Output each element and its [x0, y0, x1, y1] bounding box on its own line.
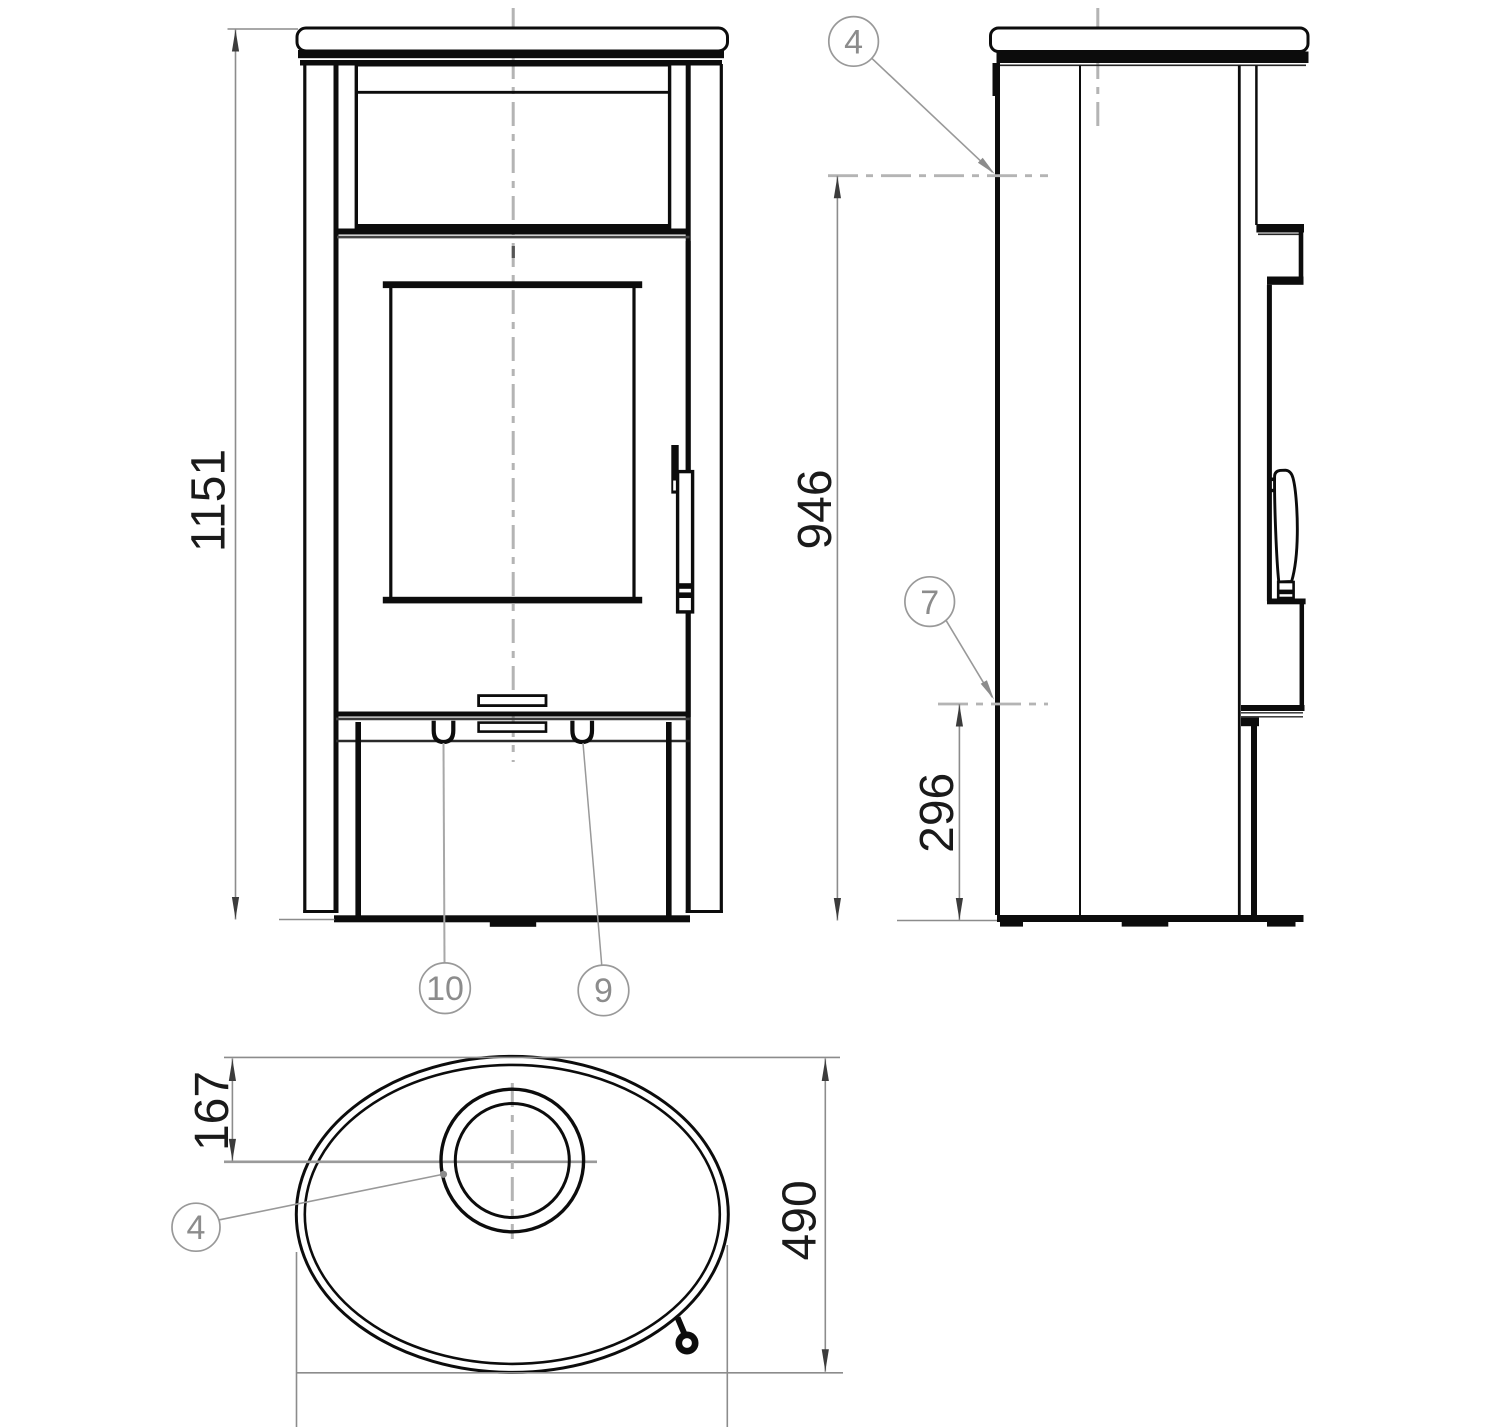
svg-text:4: 4	[844, 24, 863, 62]
svg-text:167: 167	[186, 1071, 239, 1151]
svg-text:490: 490	[774, 1180, 827, 1260]
svg-text:7: 7	[920, 584, 939, 622]
svg-text:1151: 1151	[183, 449, 236, 552]
svg-text:10: 10	[426, 970, 464, 1008]
svg-text:946: 946	[789, 469, 842, 549]
svg-text:296: 296	[911, 773, 964, 853]
svg-text:9: 9	[594, 972, 613, 1010]
svg-text:4: 4	[187, 1209, 206, 1247]
